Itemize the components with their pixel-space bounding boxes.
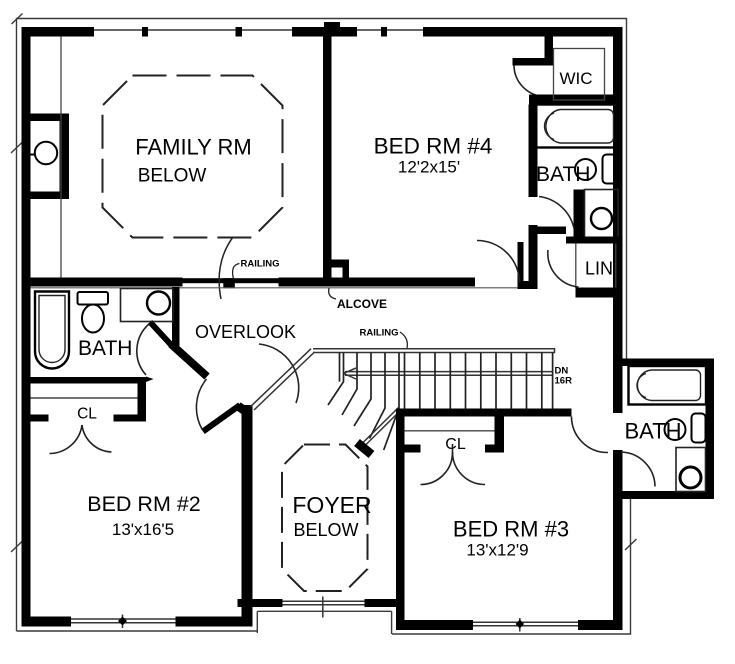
svg-text:BELOW: BELOW xyxy=(293,520,358,540)
svg-text:OVERLOOK: OVERLOOK xyxy=(195,322,296,342)
svg-text:BED RM #2: BED RM #2 xyxy=(87,492,201,516)
svg-text:FOYER: FOYER xyxy=(292,492,371,518)
svg-text:13'x12'9: 13'x12'9 xyxy=(466,541,528,560)
svg-text:LIN: LIN xyxy=(585,259,613,279)
svg-text:BATH: BATH xyxy=(536,163,590,186)
svg-text:FAMILY RM: FAMILY RM xyxy=(135,135,252,160)
svg-text:BATH: BATH xyxy=(625,419,682,444)
svg-text:RAILING: RAILING xyxy=(241,259,280,270)
svg-text:BED RM #3: BED RM #3 xyxy=(453,517,569,542)
svg-text:ALCOVE: ALCOVE xyxy=(337,297,387,311)
svg-text:BED RM #4: BED RM #4 xyxy=(374,134,493,159)
svg-text:RAILING: RAILING xyxy=(360,328,399,339)
svg-text:CL: CL xyxy=(445,436,466,453)
svg-text:BATH: BATH xyxy=(78,337,132,360)
svg-text:BELOW: BELOW xyxy=(138,166,207,187)
svg-text:16R: 16R xyxy=(555,376,573,387)
svg-text:WIC: WIC xyxy=(559,69,592,88)
svg-text:13'x16'5: 13'x16'5 xyxy=(112,520,174,539)
svg-text:CL: CL xyxy=(77,406,97,423)
svg-text:12'2x15': 12'2x15' xyxy=(398,158,460,177)
